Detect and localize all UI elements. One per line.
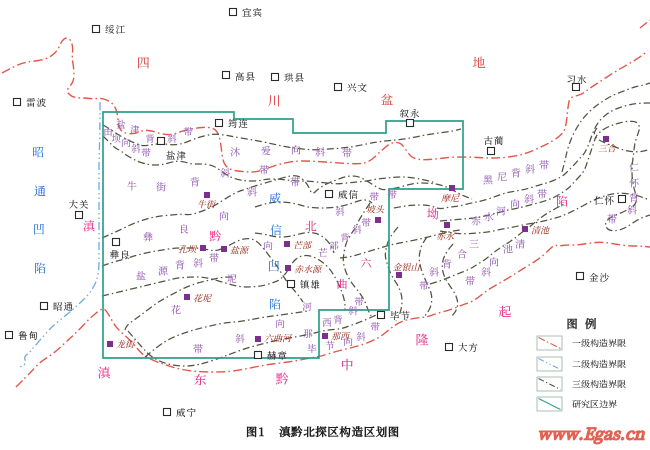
svg-text:沐: 沐: [230, 144, 241, 159]
svg-text:滇黔北探区构造区划图: 滇黔北探区构造区划图: [279, 424, 400, 440]
svg-text:坡头: 坡头: [366, 203, 385, 216]
svg-text:镇雄: 镇雄: [299, 277, 321, 291]
svg-text:隆: 隆: [415, 330, 428, 349]
svg-text:盐: 盐: [136, 268, 146, 283]
svg-text:斜: 斜: [247, 184, 258, 199]
svg-text:雷波: 雷波: [26, 95, 47, 109]
svg-text:毕: 毕: [307, 341, 317, 355]
svg-text:带: 带: [193, 341, 203, 356]
svg-text:研究区边界: 研究区边界: [572, 398, 618, 411]
svg-text:兴文: 兴文: [347, 80, 368, 94]
svg-text:斜: 斜: [481, 264, 492, 279]
svg-text:鲁甸: 鲁甸: [18, 328, 39, 342]
svg-text:金沙: 金沙: [589, 270, 610, 284]
svg-text:合: 合: [457, 246, 467, 261]
svg-text:牛街: 牛街: [197, 198, 217, 211]
svg-text:川: 川: [267, 91, 280, 110]
svg-text:仁怀: 仁怀: [594, 193, 615, 207]
svg-text:曲: 曲: [337, 276, 348, 292]
svg-text:起: 起: [497, 302, 511, 321]
svg-text:陷: 陷: [34, 260, 46, 277]
svg-text:图1: 图1: [246, 424, 265, 440]
svg-text:背: 背: [333, 312, 343, 326]
svg-text:龙街: 龙街: [116, 338, 136, 351]
svg-text:带: 带: [539, 157, 549, 172]
svg-text:黔: 黔: [209, 228, 221, 245]
svg-text:带: 带: [342, 145, 352, 160]
svg-text:图例: 图例: [567, 316, 604, 332]
svg-text:坭: 坭: [226, 271, 237, 286]
svg-text:斜: 斜: [524, 191, 535, 206]
svg-text:水: 水: [483, 209, 494, 224]
svg-text:东: 东: [193, 370, 206, 389]
svg-text:威: 威: [269, 190, 281, 207]
svg-text:斜: 斜: [130, 141, 141, 155]
svg-text:尼: 尼: [497, 169, 507, 184]
svg-text:陷: 陷: [269, 296, 281, 313]
svg-text:带: 带: [361, 215, 371, 229]
svg-text:珙县: 珙县: [284, 70, 305, 84]
svg-text:带: 带: [183, 124, 193, 138]
svg-text:赤水: 赤水: [436, 230, 455, 243]
svg-text:带: 带: [259, 162, 269, 177]
svg-text:高县: 高县: [235, 69, 256, 83]
svg-text:向: 向: [510, 196, 520, 211]
svg-text:带: 带: [537, 186, 547, 201]
svg-text:六: 六: [361, 255, 372, 271]
svg-text:仁: 仁: [629, 159, 639, 174]
svg-text:宜宾: 宜宾: [242, 5, 263, 19]
svg-text:背: 背: [145, 131, 155, 145]
svg-text:向: 向: [219, 208, 229, 223]
svg-text:斜: 斜: [193, 255, 204, 270]
svg-text:盆: 盆: [380, 90, 393, 109]
svg-text:带: 带: [387, 187, 397, 201]
svg-text:摩尼: 摩尼: [441, 192, 460, 205]
svg-text:带: 带: [465, 273, 475, 288]
svg-text:黑: 黑: [483, 172, 493, 187]
svg-text:赤水源: 赤水源: [294, 263, 323, 276]
svg-text:斜: 斜: [315, 144, 326, 159]
svg-text:带: 带: [369, 189, 379, 203]
svg-text:芒: 芒: [318, 245, 328, 259]
svg-text:彝良: 彝良: [109, 247, 130, 261]
svg-text:背: 背: [511, 165, 521, 180]
svg-text:带: 带: [209, 250, 219, 265]
svg-text:大方: 大方: [458, 340, 479, 354]
svg-text:信: 信: [270, 222, 282, 239]
svg-text:良: 良: [179, 221, 189, 236]
svg-text:昭通: 昭通: [53, 299, 74, 313]
svg-text:昭: 昭: [32, 144, 44, 161]
svg-text:带: 带: [370, 319, 380, 333]
svg-text:芒部: 芒部: [293, 239, 313, 252]
svg-text:背: 背: [340, 230, 350, 244]
svg-text:凹: 凹: [33, 221, 45, 238]
svg-text:黔: 黔: [275, 369, 288, 388]
svg-text:孔坝: 孔坝: [178, 243, 198, 256]
svg-text:中: 中: [340, 355, 353, 374]
svg-text:彝: 彝: [143, 229, 153, 244]
svg-text:向: 向: [121, 135, 131, 149]
svg-text:带: 带: [141, 145, 151, 159]
svg-text:带: 带: [607, 211, 617, 226]
svg-text:滇: 滇: [83, 218, 95, 235]
svg-text:四: 四: [136, 53, 149, 72]
svg-text:背: 背: [442, 256, 452, 271]
svg-text:赤: 赤: [471, 213, 481, 228]
svg-text:一级构造界限: 一级构造界限: [572, 337, 626, 350]
svg-text:向: 向: [291, 142, 301, 157]
svg-text:斜: 斜: [234, 331, 245, 345]
svg-text:大关: 大关: [68, 197, 89, 211]
svg-text:带: 带: [354, 294, 364, 308]
svg-text:三合: 三合: [598, 142, 617, 155]
svg-text:牛: 牛: [126, 178, 137, 193]
svg-text:花: 花: [171, 302, 181, 317]
svg-text:盐: 盐: [116, 117, 126, 131]
svg-text:向: 向: [263, 238, 273, 252]
svg-text:怀: 怀: [629, 175, 639, 190]
svg-text:威宁: 威宁: [176, 405, 197, 419]
svg-text:毕节: 毕节: [390, 308, 411, 322]
svg-text:斜: 斜: [627, 202, 638, 217]
svg-text:金银山: 金银山: [392, 261, 420, 274]
svg-text:带: 带: [290, 174, 300, 189]
svg-text:古蔺: 古蔺: [483, 133, 504, 147]
svg-text:源: 源: [158, 263, 168, 278]
svg-text:北: 北: [305, 218, 317, 235]
svg-text:斜: 斜: [525, 161, 536, 176]
svg-text:二级构造界限: 二级构造界限: [572, 358, 626, 371]
svg-text:三级构造界限: 三级构造界限: [572, 378, 626, 391]
svg-text:街: 街: [156, 179, 166, 194]
svg-text:斜: 斜: [220, 165, 231, 180]
svg-text:池: 池: [503, 241, 513, 256]
svg-text:斜: 斜: [166, 131, 177, 145]
svg-text:习水: 习水: [566, 72, 587, 86]
svg-text:三: 三: [469, 236, 479, 251]
svg-text:河: 河: [302, 299, 312, 313]
svg-text:河: 河: [496, 203, 506, 218]
svg-text:背: 背: [190, 174, 200, 189]
svg-text:陷: 陷: [556, 193, 568, 210]
svg-text:盐津: 盐津: [166, 148, 187, 162]
svg-text:那: 那: [303, 326, 313, 340]
svg-text:向: 向: [275, 316, 285, 330]
svg-text:盐源: 盐源: [230, 244, 250, 257]
svg-text:凹: 凹: [268, 258, 280, 275]
svg-text:赫章: 赫章: [267, 348, 288, 362]
svg-text:斜: 斜: [355, 329, 366, 343]
svg-text:花坭: 花坭: [193, 292, 213, 305]
svg-text:通: 通: [34, 183, 46, 200]
svg-text:背: 背: [175, 257, 185, 272]
svg-text:威信: 威信: [338, 187, 359, 201]
svg-text:爱: 爱: [261, 143, 271, 158]
svg-text:津: 津: [130, 122, 140, 136]
svg-text:坳: 坳: [427, 206, 439, 223]
svg-text:地: 地: [472, 53, 485, 72]
svg-text:清: 清: [515, 236, 525, 251]
svg-text:滇: 滇: [97, 363, 110, 382]
svg-text:斜: 斜: [429, 264, 440, 279]
svg-text:坝: 坝: [111, 131, 121, 145]
svg-text:绥江: 绥江: [105, 22, 126, 36]
svg-text:带: 带: [419, 278, 429, 292]
svg-text:叙永: 叙永: [398, 106, 420, 120]
svg-text:www.Egas.cn: www.Egas.cn: [538, 422, 646, 445]
svg-text:筠连: 筠连: [228, 116, 249, 130]
svg-text:西: 西: [322, 315, 332, 329]
svg-text:那西: 那西: [331, 330, 351, 343]
svg-text:部: 部: [329, 238, 339, 252]
svg-text:清池: 清池: [531, 224, 550, 237]
svg-text:六曲河: 六曲河: [264, 332, 293, 345]
svg-text:斜: 斜: [334, 204, 345, 218]
